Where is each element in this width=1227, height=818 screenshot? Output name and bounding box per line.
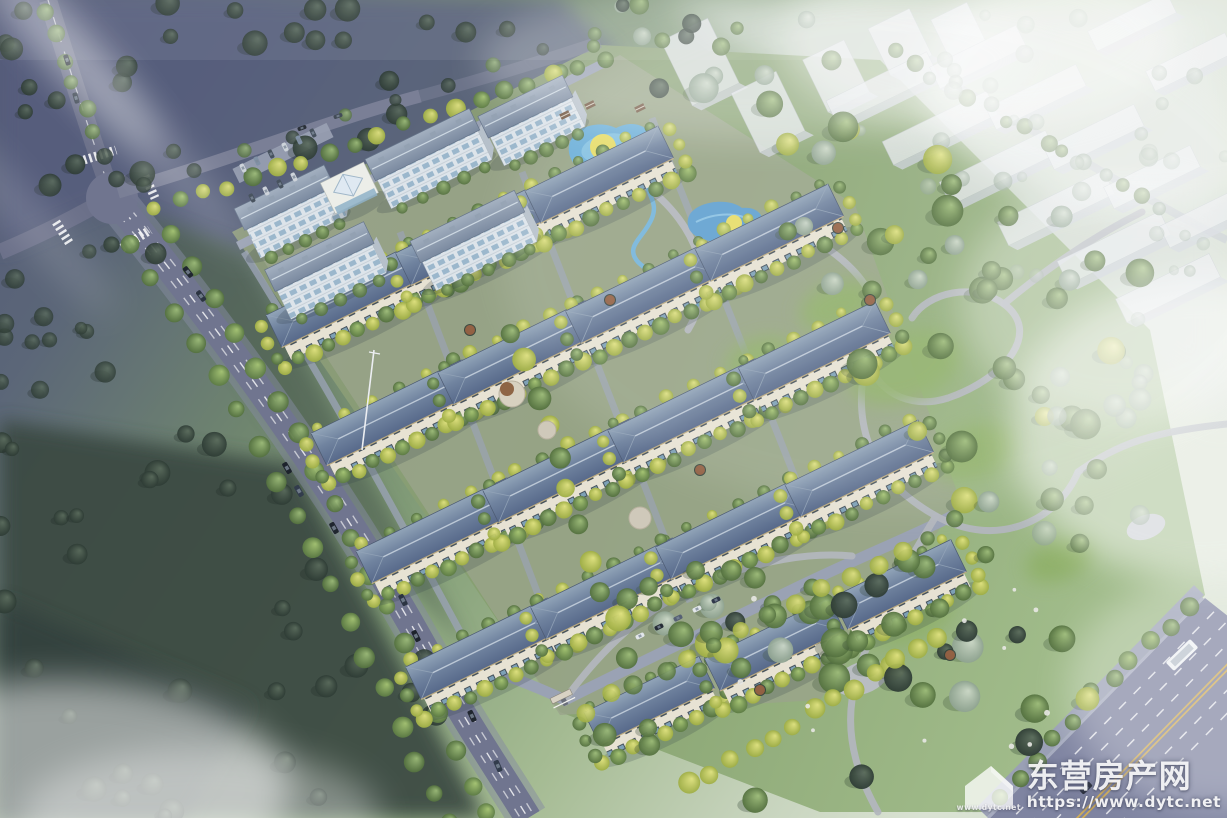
- courtyard-canopy: [500, 382, 514, 396]
- aerial-render: www.dytc.net 东营房产网 https://www.dytc.net: [0, 0, 1227, 818]
- courtyard-plaza: [538, 421, 556, 439]
- aerial-render-svg: [0, 0, 1227, 818]
- courtyard-plaza: [629, 507, 651, 529]
